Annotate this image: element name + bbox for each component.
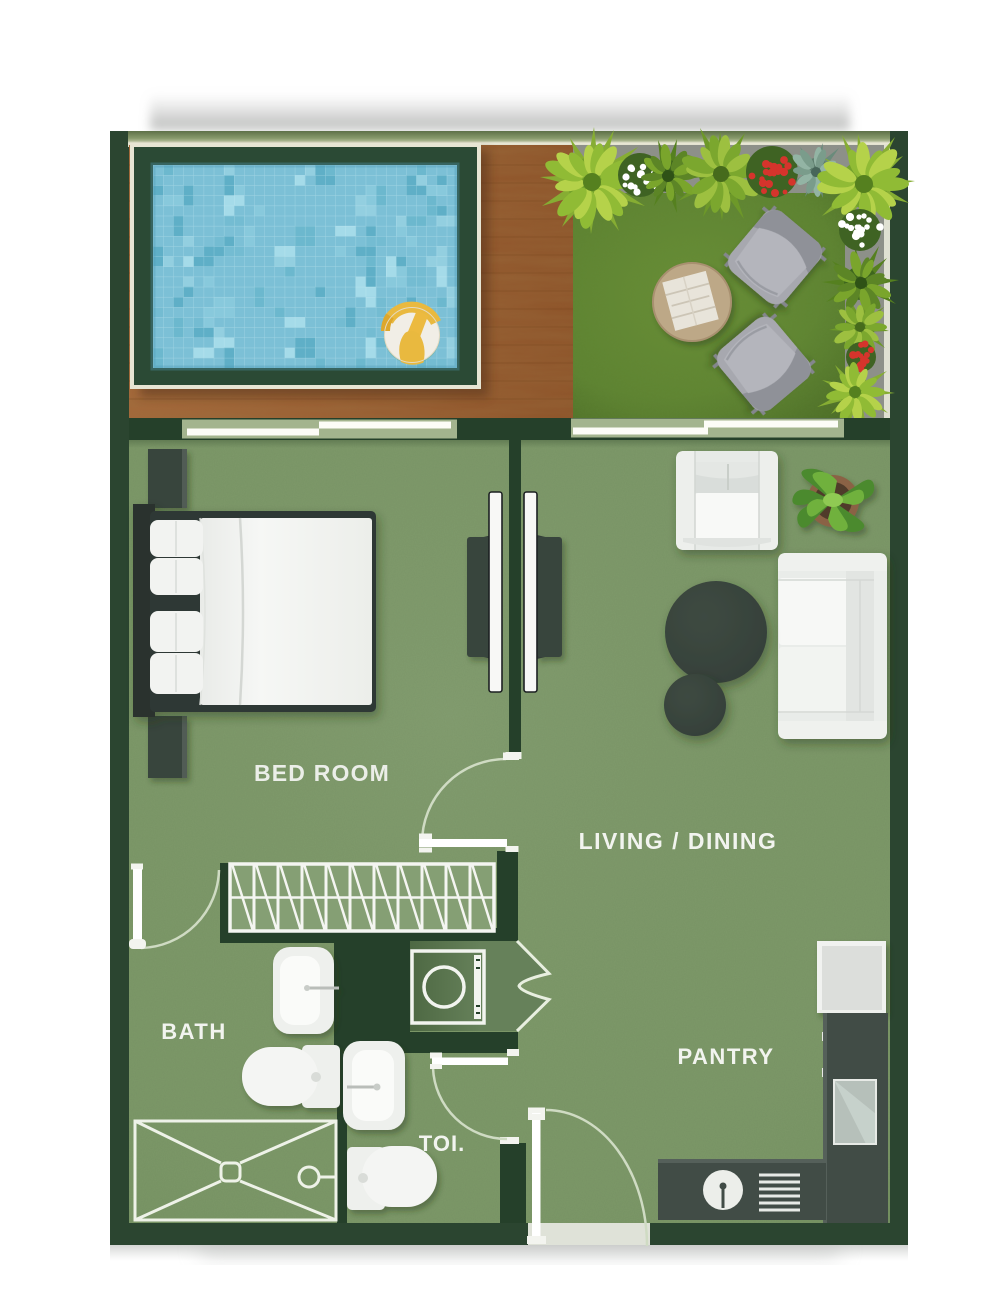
- svg-text:PANTRY: PANTRY: [678, 1044, 775, 1069]
- svg-text:BATH: BATH: [161, 1019, 226, 1044]
- svg-text:LIVING / DINING: LIVING / DINING: [579, 828, 778, 854]
- svg-text:BED ROOM: BED ROOM: [254, 760, 390, 786]
- svg-text:TOI.: TOI.: [419, 1131, 465, 1156]
